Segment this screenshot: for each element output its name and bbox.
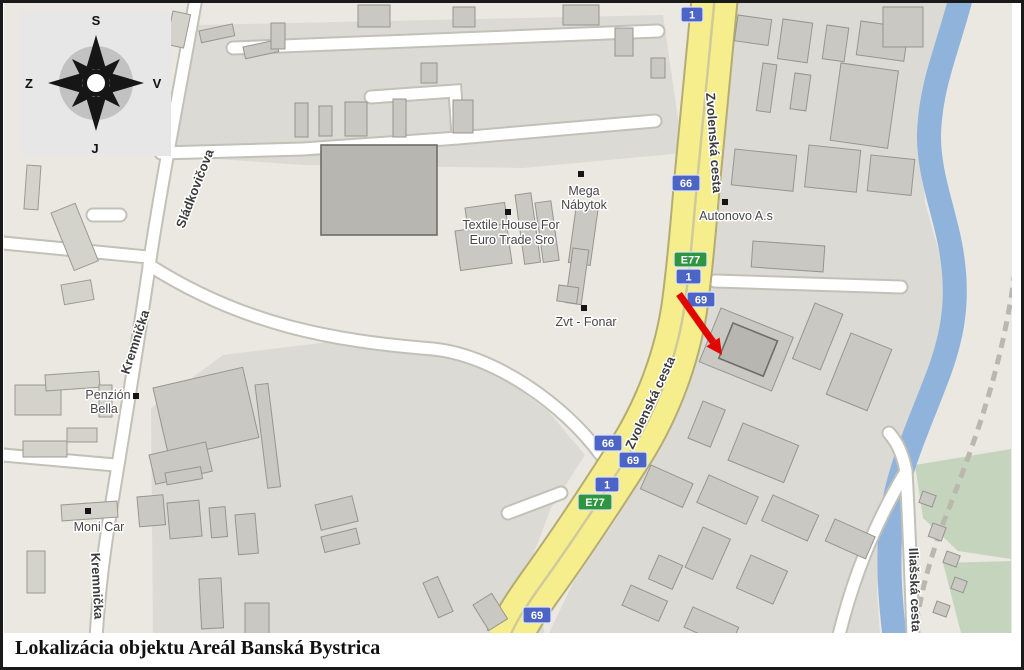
marker-mega-nabytok [578, 171, 584, 177]
svg-text:E77: E77 [681, 255, 701, 267]
shield-69-upper: 69 [687, 292, 715, 307]
svg-text:69: 69 [531, 610, 543, 622]
shield-e77-upper: E77 [674, 252, 707, 267]
marker-moni-car [85, 508, 91, 514]
place-label-zvt-fonar: Zvt - Fonar [555, 315, 616, 329]
marker-textile-house [505, 209, 511, 215]
svg-text:69: 69 [627, 455, 639, 467]
marker-zvt-fonar [581, 305, 587, 311]
shield-66-mid: 66 [594, 435, 622, 451]
map-figure: Zvolenská cesta Zvolenská cesta Sládkovi… [0, 0, 1024, 670]
map-layers: Zvolenská cesta Zvolenská cesta Sládkovi… [3, 3, 1015, 647]
place-label-penzion-line1: Penzión [85, 388, 130, 402]
place-label-moni-car: Moni Car [74, 520, 125, 534]
place-label-autonovo: Autonovo A.s [699, 209, 773, 223]
place-label-textile-line1: Textile House For [462, 218, 559, 232]
street-label-iliasska: Iliašská cesta [906, 548, 924, 633]
shield-69-mid: 69 [619, 452, 647, 468]
compass-south-label: J [91, 141, 98, 156]
compass-west-label: Z [25, 76, 33, 91]
map-canvas: Zvolenská cesta Zvolenská cesta Sládkovi… [3, 3, 1024, 670]
shield-66-upper: 66 [672, 175, 700, 191]
shield-1-mid: 1 [595, 477, 619, 492]
svg-text:66: 66 [680, 178, 692, 190]
compass-east-label: V [153, 76, 162, 91]
svg-text:1: 1 [604, 480, 610, 492]
place-label-penzion-line2: Bella [90, 402, 118, 416]
shield-1-top: 1 [681, 7, 703, 22]
svg-text:66: 66 [602, 438, 614, 450]
svg-text:1: 1 [689, 10, 695, 22]
shield-1-upper: 1 [676, 269, 701, 284]
compass-north-label: S [92, 13, 101, 28]
compass-rose: S V J Z [21, 11, 171, 156]
svg-text:E77: E77 [585, 497, 605, 509]
place-label-mega-line2: Nábytok [561, 198, 608, 212]
svg-text:69: 69 [695, 295, 707, 307]
marker-penzion-bella [133, 393, 139, 399]
marker-autonovo [722, 199, 728, 205]
right-margin [1012, 3, 1024, 670]
place-label-textile-line2: Euro Trade Sro [470, 233, 555, 247]
svg-text:1: 1 [685, 272, 691, 284]
shield-e77-mid: E77 [578, 494, 612, 510]
figure-caption: Lokalizácia objektu Areál Banská Bystric… [15, 637, 1015, 660]
shield-69-bottom: 69 [523, 607, 551, 623]
place-label-mega-line1: Mega [568, 184, 599, 198]
